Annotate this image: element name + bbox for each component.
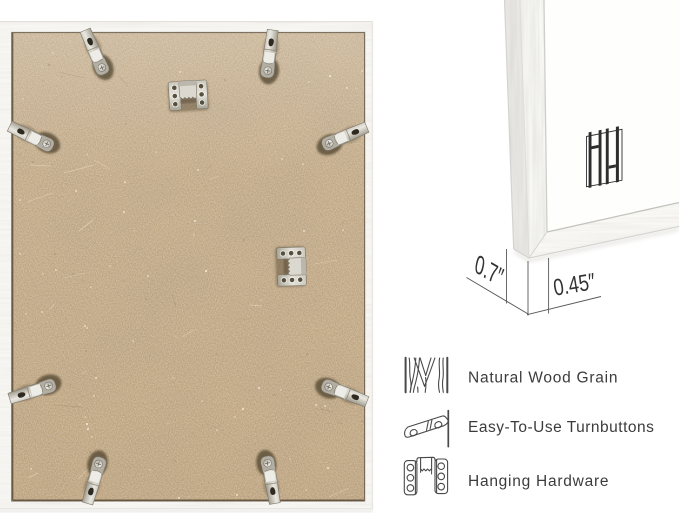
svg-text:Easy-To-Use Turnbuttons: Easy-To-Use Turnbuttons bbox=[468, 419, 654, 436]
svg-text:Hanging Hardware: Hanging Hardware bbox=[468, 473, 609, 490]
svg-text:0.7″: 0.7″ bbox=[472, 249, 506, 293]
svg-text:Natural Wood Grain: Natural Wood Grain bbox=[468, 370, 618, 387]
svg-text:0.45″: 0.45″ bbox=[552, 269, 598, 301]
